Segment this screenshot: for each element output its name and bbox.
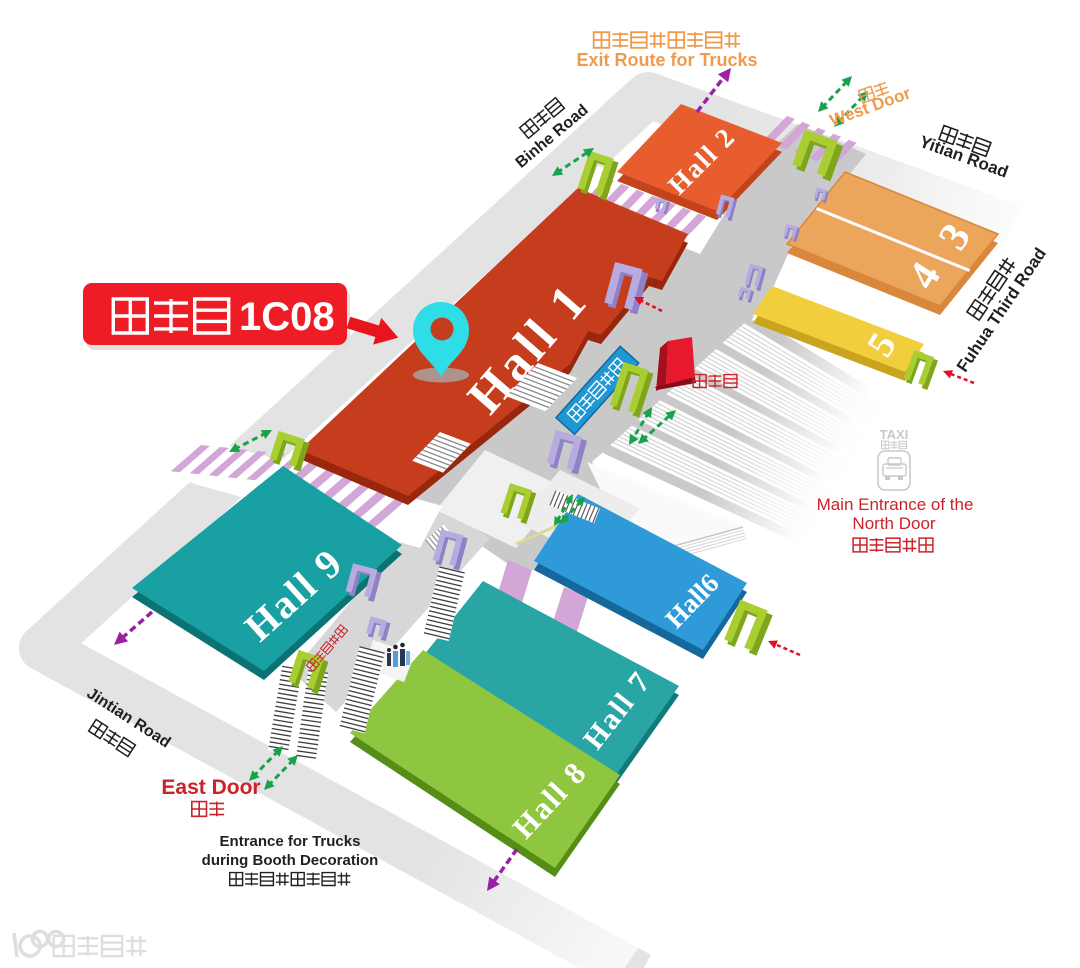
- svg-text:Exit Route for Trucks: Exit Route for Trucks: [576, 50, 757, 70]
- svg-text:during Booth Decoration: during Booth Decoration: [202, 852, 379, 869]
- svg-text:Main Entrance of the: Main Entrance of the: [817, 495, 974, 514]
- svg-text:North Door: North Door: [852, 514, 935, 533]
- svg-text:TAXI: TAXI: [880, 427, 909, 442]
- svg-text:East Door: East Door: [161, 776, 260, 799]
- svg-text:Entrance for Trucks: Entrance for Trucks: [220, 833, 361, 850]
- svg-text:1C08: 1C08: [239, 295, 335, 339]
